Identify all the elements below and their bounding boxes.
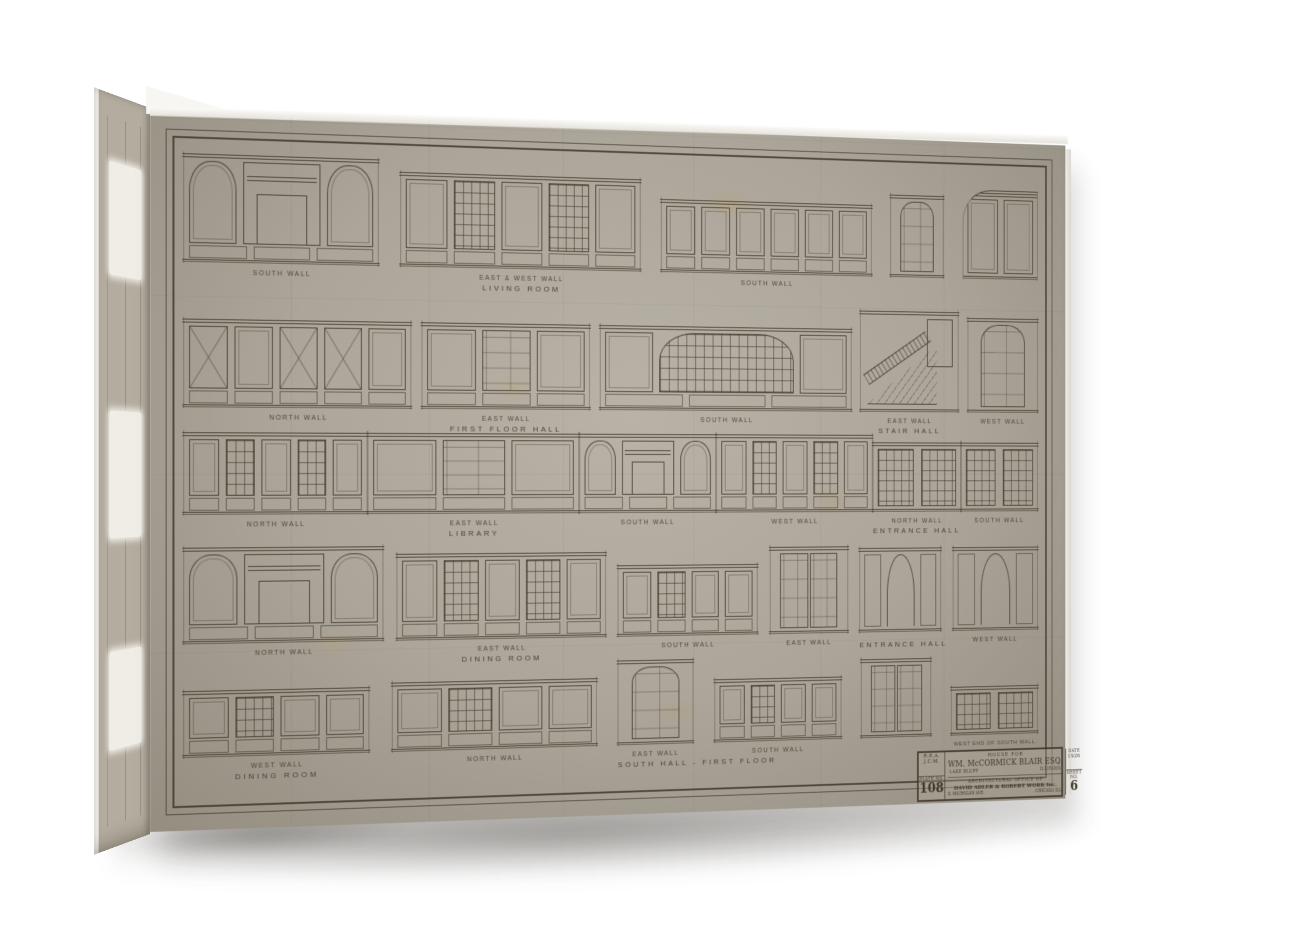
dado-panel [406, 250, 448, 264]
photo-scene: SOUTH WALLEAST & WEST WALLLIVING ROOMSOU… [0, 0, 1290, 945]
dado-panel [317, 248, 373, 262]
panel-p [595, 185, 635, 254]
base-line [872, 509, 961, 512]
room-label: LIBRARY [367, 528, 578, 538]
fireplace-opening [259, 580, 310, 623]
panel-w [956, 692, 991, 730]
wall-label: SOUTH WALL [579, 519, 716, 526]
room-label: SOUTH HALL - FIRST FLOOR [618, 758, 694, 769]
edge-white-patch [109, 161, 141, 281]
panel-w [548, 183, 588, 252]
panel-n [920, 554, 936, 626]
dado-panel [691, 619, 719, 632]
elevation-labels: NORTH WALL [183, 515, 367, 542]
dado-panel [189, 245, 247, 259]
elevation-labels: EAST & WEST WALLLIVING ROOM [400, 267, 640, 297]
panel-p [691, 571, 719, 618]
panel-p [719, 685, 744, 724]
elevation: WEST WALL [953, 537, 1038, 655]
fireplace-opening [257, 194, 307, 245]
wall-label: WEST WALL [953, 636, 1038, 644]
cornice-line [950, 685, 1038, 691]
elevation-labels [891, 278, 944, 303]
wall-label: SOUTH WALL [714, 745, 841, 755]
wall-label: EAST WALL [618, 750, 694, 759]
date-cell: DATE 1926 [1066, 748, 1083, 770]
panel-row [956, 691, 1033, 730]
panel-d [482, 330, 530, 391]
wall-label: EAST WALL [367, 520, 578, 528]
sheet-row: NORTH WALLEAST WALLFIRST FLOOR HALLSOUTH… [183, 295, 1038, 438]
panel-w [813, 441, 837, 494]
panel-w [443, 560, 478, 621]
panel-o [887, 554, 914, 626]
panel-row [373, 440, 573, 496]
title-block: R.E.A. J.C.M. PLATE NO. 108 HOUSE FOR WM… [917, 747, 1063, 802]
wall-label: SOUTH WALL [961, 517, 1038, 524]
panel-p [1003, 200, 1033, 275]
elevation: EAST & WEST WALLLIVING ROOM [400, 156, 640, 297]
panel-d [897, 665, 921, 732]
base-line [963, 276, 1038, 280]
dado-panel [448, 733, 492, 747]
plate-number: 108 [920, 782, 944, 797]
panel-w [297, 439, 326, 495]
dado-panel [235, 739, 274, 753]
panel-p [666, 206, 695, 255]
elevation: NORTH WALL [183, 295, 411, 435]
panel-p [548, 685, 591, 729]
panel-p [373, 440, 436, 496]
elevation-labels: SOUTH WALL [183, 263, 379, 293]
elevation: ENTRANCE HALL [860, 538, 942, 657]
panel-p [326, 694, 364, 735]
dado-panel [225, 498, 254, 511]
cornice-line [890, 195, 945, 200]
base-line [952, 627, 1039, 631]
wall-label: EAST WALL [421, 416, 589, 424]
elevation: SOUTH WALL [661, 165, 872, 302]
cornice-line [420, 322, 590, 328]
panel-row [780, 553, 837, 628]
wall-label: SOUTH WALL [183, 269, 379, 280]
cornice-line [578, 434, 717, 438]
panel-p [281, 695, 319, 736]
panel-w [750, 685, 775, 724]
elevation: NORTH WALL [391, 657, 596, 778]
elevation-drawing-windows [396, 550, 606, 641]
panel-row [189, 326, 406, 391]
elevation: NORTH WALL [183, 542, 383, 671]
wall-label: WEST WALL [716, 518, 873, 525]
dado-panel [280, 391, 318, 404]
dado-panel [812, 723, 836, 736]
sheet-number-cell: SHEET NO. 6 [1066, 770, 1083, 795]
panel-row [981, 325, 1025, 408]
dado-panel [402, 623, 437, 636]
edge-print-line [107, 115, 108, 827]
dado-panel [752, 496, 777, 508]
dado-panel [804, 259, 832, 272]
panel-p [968, 199, 998, 274]
panel-p [397, 688, 441, 733]
sheet-row: WEST WALLDINING ROOMNORTH WALLEAST WALLS… [183, 648, 1038, 784]
elevation-labels: WEST WALLDINING ROOM [183, 754, 369, 785]
cornice-line [617, 659, 695, 664]
wall-label [963, 285, 1038, 287]
elevation-drawing-door [968, 316, 1038, 414]
panel-p [235, 326, 273, 389]
panel-row [427, 329, 584, 392]
cornice-line [367, 433, 580, 438]
dado-panel [736, 258, 765, 271]
cornice-line [872, 442, 961, 446]
elevation [963, 175, 1038, 305]
base-line [578, 510, 717, 513]
wall-label: SOUTH WALL [618, 641, 758, 650]
panel-n [1015, 553, 1032, 624]
elevation: NORTH WALL [183, 428, 367, 542]
panel-p [537, 331, 585, 392]
panel-row [865, 554, 937, 627]
dado-row [623, 618, 753, 632]
office-street: S. MICHIGAN AVE. [948, 791, 985, 797]
dado-panel [373, 497, 436, 510]
dado-panel [320, 624, 378, 638]
elevation-labels: WEST WALL [716, 513, 873, 538]
dado-panel [750, 725, 775, 738]
elevation-drawing-grid [951, 683, 1038, 736]
panel-row [958, 553, 1033, 625]
base-line [182, 511, 368, 515]
canvas-print: SOUTH WALLEAST & WEST WALLLIVING ROOMSOU… [150, 112, 1065, 832]
dado-panel [427, 392, 476, 405]
panel-x [324, 328, 362, 390]
dado-panel [657, 620, 685, 633]
dado-panel [701, 257, 730, 270]
dado-panel [548, 253, 588, 266]
wall-label: EAST WALL [770, 639, 848, 647]
cornice-line [182, 432, 368, 437]
elevation-labels: SOUTH WALL [961, 512, 1038, 536]
canvas-wrapped-edge [94, 87, 150, 854]
panel-p [262, 439, 291, 495]
elevation-drawing-mantel [579, 432, 716, 514]
dado-panel [666, 256, 695, 269]
panel-w [448, 687, 492, 732]
panel-row [406, 179, 636, 254]
dado-panel [397, 734, 441, 748]
cornice-line [859, 547, 943, 551]
elevation-drawing-windows [716, 432, 873, 513]
dado-panel [781, 724, 806, 737]
cornice-line [952, 547, 1039, 551]
dado-panel [498, 731, 542, 745]
dado-panel [324, 391, 362, 404]
elevation: WEST WALL [716, 431, 873, 538]
cornice-line [963, 192, 1038, 198]
elevation-drawing-door [891, 193, 944, 279]
dado-row [721, 496, 868, 509]
panel-p [406, 179, 448, 249]
mantel-shelf [248, 565, 320, 571]
dado-panel [485, 622, 520, 635]
elevation: EAST WALLDINING ROOM [396, 541, 606, 667]
panel-row [666, 206, 867, 259]
panel-x [189, 326, 228, 389]
dado-row [373, 497, 573, 510]
cornice-line [960, 443, 1039, 447]
panel-d [632, 666, 679, 739]
dado-panel [443, 497, 505, 510]
panel-row [871, 665, 922, 733]
panel-row [901, 201, 934, 272]
cornice-line [713, 677, 842, 684]
panel-row [189, 160, 373, 247]
sheet-content: SOUTH WALLEAST & WEST WALLLIVING ROOMSOU… [183, 147, 1038, 801]
base-line [967, 410, 1039, 413]
sheet-row: SOUTH WALLEAST & WEST WALLLIVING ROOMSOU… [183, 149, 1038, 305]
elevation-drawing-doorpanels [421, 320, 589, 411]
elevation-drawing-mantel [183, 544, 383, 645]
panel-p [812, 683, 836, 722]
panel-w [235, 696, 274, 738]
panel-p [844, 441, 868, 494]
elevation: WEST END OF SOUTH WALL [951, 648, 1038, 760]
panel-n [865, 554, 882, 626]
office-city: CHICAGO ILL. [1035, 789, 1062, 795]
dado-panel [443, 623, 478, 636]
panel-d [981, 325, 1025, 408]
dado-panel [253, 246, 310, 260]
elevation-labels: SOUTH WALL [714, 740, 841, 768]
elevation: SOUTH WALL [599, 302, 851, 437]
panel-row [721, 441, 868, 495]
dado-row [427, 392, 584, 406]
drawn-by-initials: J.C.M. [920, 759, 944, 765]
panel-row [189, 439, 362, 496]
base-line [715, 509, 874, 512]
dado-row [189, 390, 406, 404]
cornice-line [769, 546, 849, 550]
dado-panel [326, 736, 364, 750]
elevation-drawing-bigarch [599, 323, 851, 412]
cornice-line [860, 658, 932, 663]
panel-w [966, 449, 996, 506]
elevation [861, 651, 931, 764]
wall-label: SOUTH WALL [661, 279, 872, 290]
dado-panel [838, 260, 866, 273]
dado-panel [673, 497, 711, 509]
panel-p [721, 441, 746, 495]
elevation-drawing-doubledoor [770, 544, 848, 635]
cornice-line [617, 564, 759, 569]
elevation-labels: EAST WALLSOUTH HALL - FIRST FLOOR [618, 744, 694, 771]
elevation-drawing-doorpanels [367, 431, 578, 515]
dado-panel [235, 391, 273, 404]
plate-number-cell: PLATE NO. 108 [919, 776, 945, 800]
panel-w [998, 691, 1033, 728]
fireplace-opening [631, 461, 664, 493]
panel-p [501, 182, 542, 251]
elevation-drawing-grid [873, 441, 961, 513]
dado-panel [813, 496, 837, 508]
panel-p [485, 560, 520, 621]
dado-panel [482, 393, 530, 406]
dado-panel [629, 497, 667, 509]
wall-label: EAST WALL [860, 418, 958, 425]
panel-p [566, 559, 600, 620]
panel-w [454, 180, 495, 250]
mantel-shelf [625, 450, 671, 455]
elevation-drawing-mantel [183, 151, 379, 267]
elevation: EAST WALL [770, 539, 848, 660]
dado-panel [595, 254, 635, 267]
dado-panel [189, 390, 228, 403]
elevation-drawing-lowwall [618, 562, 758, 638]
elevation-drawing-lowwall [183, 685, 369, 759]
panel-p [402, 560, 437, 622]
elevation: WEST WALL [968, 309, 1038, 438]
cornice-line [182, 546, 384, 552]
title-block-left-column: R.E.A. J.C.M. PLATE NO. 108 [919, 752, 946, 800]
panel-row [632, 666, 679, 739]
wall-label: WEST WALL [968, 419, 1038, 426]
dado-panel [454, 251, 495, 265]
title-block-center: HOUSE FOR WM. McCORMICK BLAIR ESQ. LAKE … [945, 749, 1065, 800]
base-line [182, 404, 412, 409]
dado-panel [262, 498, 291, 511]
panel-w [657, 571, 685, 618]
panel-p [725, 571, 752, 617]
elevation-labels: SOUTH WALL [579, 513, 716, 538]
panel-w [225, 439, 254, 496]
panel-p [498, 686, 542, 730]
panel-p [189, 439, 219, 496]
wall-label: WEST END OF SOUTH WALL [951, 739, 1038, 747]
elevation-labels: EAST WALLLIBRARY [367, 514, 578, 540]
base-line [859, 409, 959, 412]
wall-label: NORTH WALL [873, 518, 961, 525]
dado-panel [783, 496, 808, 508]
panel-p [736, 208, 765, 257]
dado-panel [368, 392, 405, 405]
dado-panel [333, 497, 362, 510]
base-line [890, 274, 945, 278]
elevation-drawing-archcorner [963, 189, 1038, 281]
panel-d [901, 201, 934, 272]
base-line [420, 406, 590, 410]
dado-panel [566, 621, 600, 634]
base-line [960, 508, 1039, 511]
panel-p [783, 441, 808, 494]
panel-row [878, 449, 956, 506]
elevation: EAST WALLSTAIR HALL [860, 307, 958, 437]
panel-w [526, 559, 560, 620]
panel-a [189, 554, 237, 625]
stair-door [927, 319, 953, 367]
mantel-shelf [247, 176, 317, 183]
canvas-right-edge [1065, 149, 1071, 795]
dado-panel [548, 730, 591, 744]
edge-white-patch [109, 647, 141, 751]
dado-row [189, 497, 362, 510]
panel-w [752, 441, 777, 495]
dado-panel [512, 497, 574, 510]
dado-panel [770, 258, 798, 271]
panel-p [701, 207, 730, 256]
edge-white-patch [109, 410, 141, 539]
panel-p [605, 332, 653, 393]
sheet-number: 6 [1067, 780, 1082, 794]
elevation-drawing-lowwall [714, 675, 841, 744]
panel-w [921, 449, 956, 506]
panel-row [623, 571, 753, 619]
elevation: SOUTH WALL [579, 430, 716, 539]
elevation: EAST WALLFIRST FLOOR HALL [421, 299, 589, 436]
panel-row [968, 199, 1033, 275]
dado-panel [537, 393, 585, 406]
dado-panel [721, 496, 746, 508]
elevation-drawing-doubledoor [861, 656, 931, 739]
dado-row [584, 497, 711, 510]
panel-f [243, 162, 321, 246]
elevation: WEST WALLDINING ROOM [183, 662, 369, 785]
panel-p [427, 329, 476, 391]
dado-panel [281, 737, 319, 751]
dado-panel [719, 726, 744, 739]
elevation: SOUTH WALL [961, 432, 1038, 537]
location-state: ILLINOIS [1040, 767, 1061, 772]
location-town: LAKE BLUFF [950, 770, 979, 776]
dado-panel [297, 498, 326, 511]
panel-p [333, 440, 362, 496]
cornice-line [967, 318, 1039, 323]
panel-w [878, 449, 913, 506]
wall-label: SOUTH WALL [599, 417, 851, 425]
panel-o [981, 553, 1010, 625]
date-value: 1926 [1067, 754, 1082, 760]
panel-p [368, 328, 405, 390]
wall-label: NORTH WALL [183, 414, 411, 422]
panel-p [512, 440, 574, 495]
panel-d [810, 553, 837, 628]
panel-a [331, 553, 378, 623]
panel-f [244, 554, 324, 625]
dado-panel [189, 626, 248, 640]
elevation-drawing-brace [183, 317, 411, 410]
elevation-drawing-archway [953, 545, 1038, 632]
panel-row [719, 683, 836, 724]
dado-panel [605, 394, 683, 407]
elevation-drawing-windows [400, 170, 640, 273]
panel-row [584, 440, 711, 494]
panel-a [189, 160, 236, 244]
elevation: NORTH WALLENTRANCE HALL [873, 431, 961, 537]
panel-p [189, 697, 228, 739]
elevation-labels: NORTH WALLENTRANCE HALL [873, 512, 961, 536]
panel-row [402, 559, 601, 622]
elevation: EAST WALLLIBRARY [367, 429, 578, 540]
panel-n [958, 554, 976, 626]
dado-row [605, 394, 846, 408]
panel-a [680, 441, 711, 495]
panel-p [623, 572, 651, 619]
elevation-drawing-panels [661, 197, 872, 277]
panel-a [327, 165, 373, 248]
panel-row [189, 553, 378, 625]
cornice-line [395, 552, 606, 558]
